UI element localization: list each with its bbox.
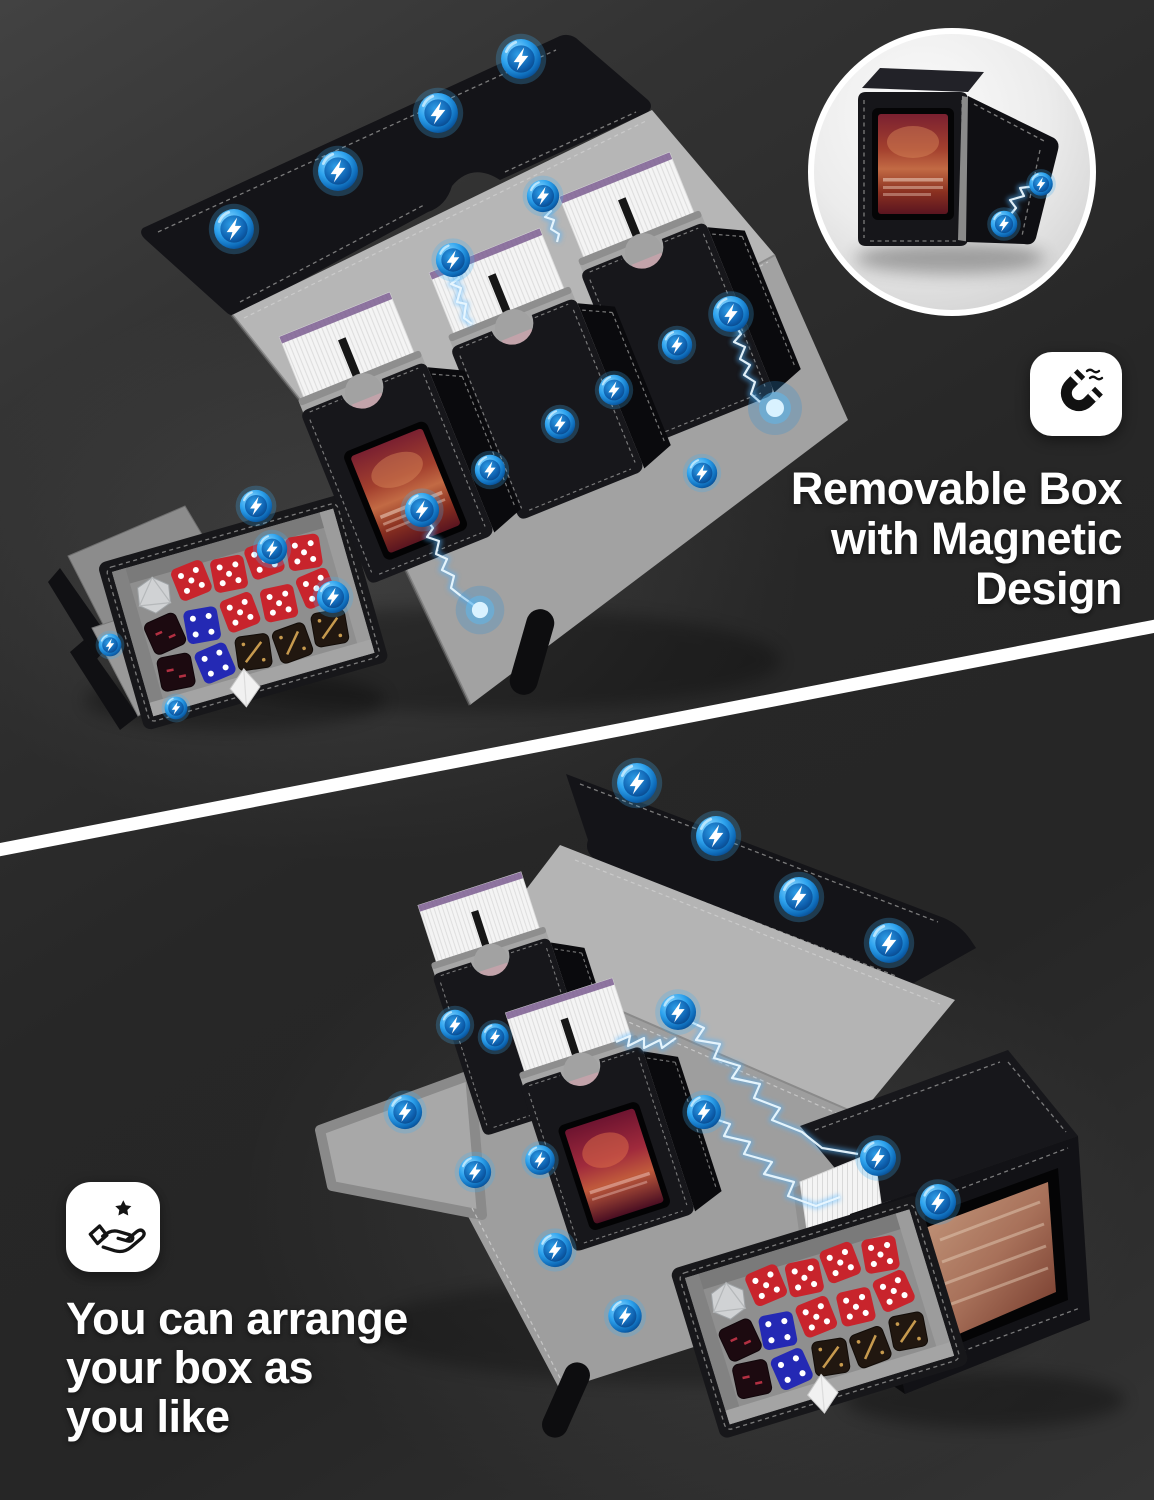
feature-magnetic-line3: Design xyxy=(791,564,1122,614)
feature-magnetic-line2: with Magnetic xyxy=(791,514,1122,564)
inset-detail-circle xyxy=(811,31,1093,313)
feature-magnetic-text: Removable Box with Magnetic Design xyxy=(791,464,1122,614)
top-product-photo xyxy=(48,34,848,739)
feature-arrange-line3: you like xyxy=(66,1392,408,1441)
bottom-product-photo xyxy=(320,758,1125,1447)
magnet-icon xyxy=(1030,352,1122,436)
product-graphic-canvas: Removable Box with Magnetic Design You c… xyxy=(0,0,1154,1500)
hand-star-icon xyxy=(66,1182,160,1272)
feature-magnetic: Removable Box with Magnetic Design xyxy=(791,352,1122,614)
feature-arrange: You can arrange your box as you like xyxy=(66,1182,408,1441)
feature-magnetic-line1: Removable Box xyxy=(791,464,1122,514)
feature-arrange-line2: your box as xyxy=(66,1343,408,1392)
feature-arrange-line1: You can arrange xyxy=(66,1294,408,1343)
feature-arrange-text: You can arrange your box as you like xyxy=(66,1294,408,1441)
